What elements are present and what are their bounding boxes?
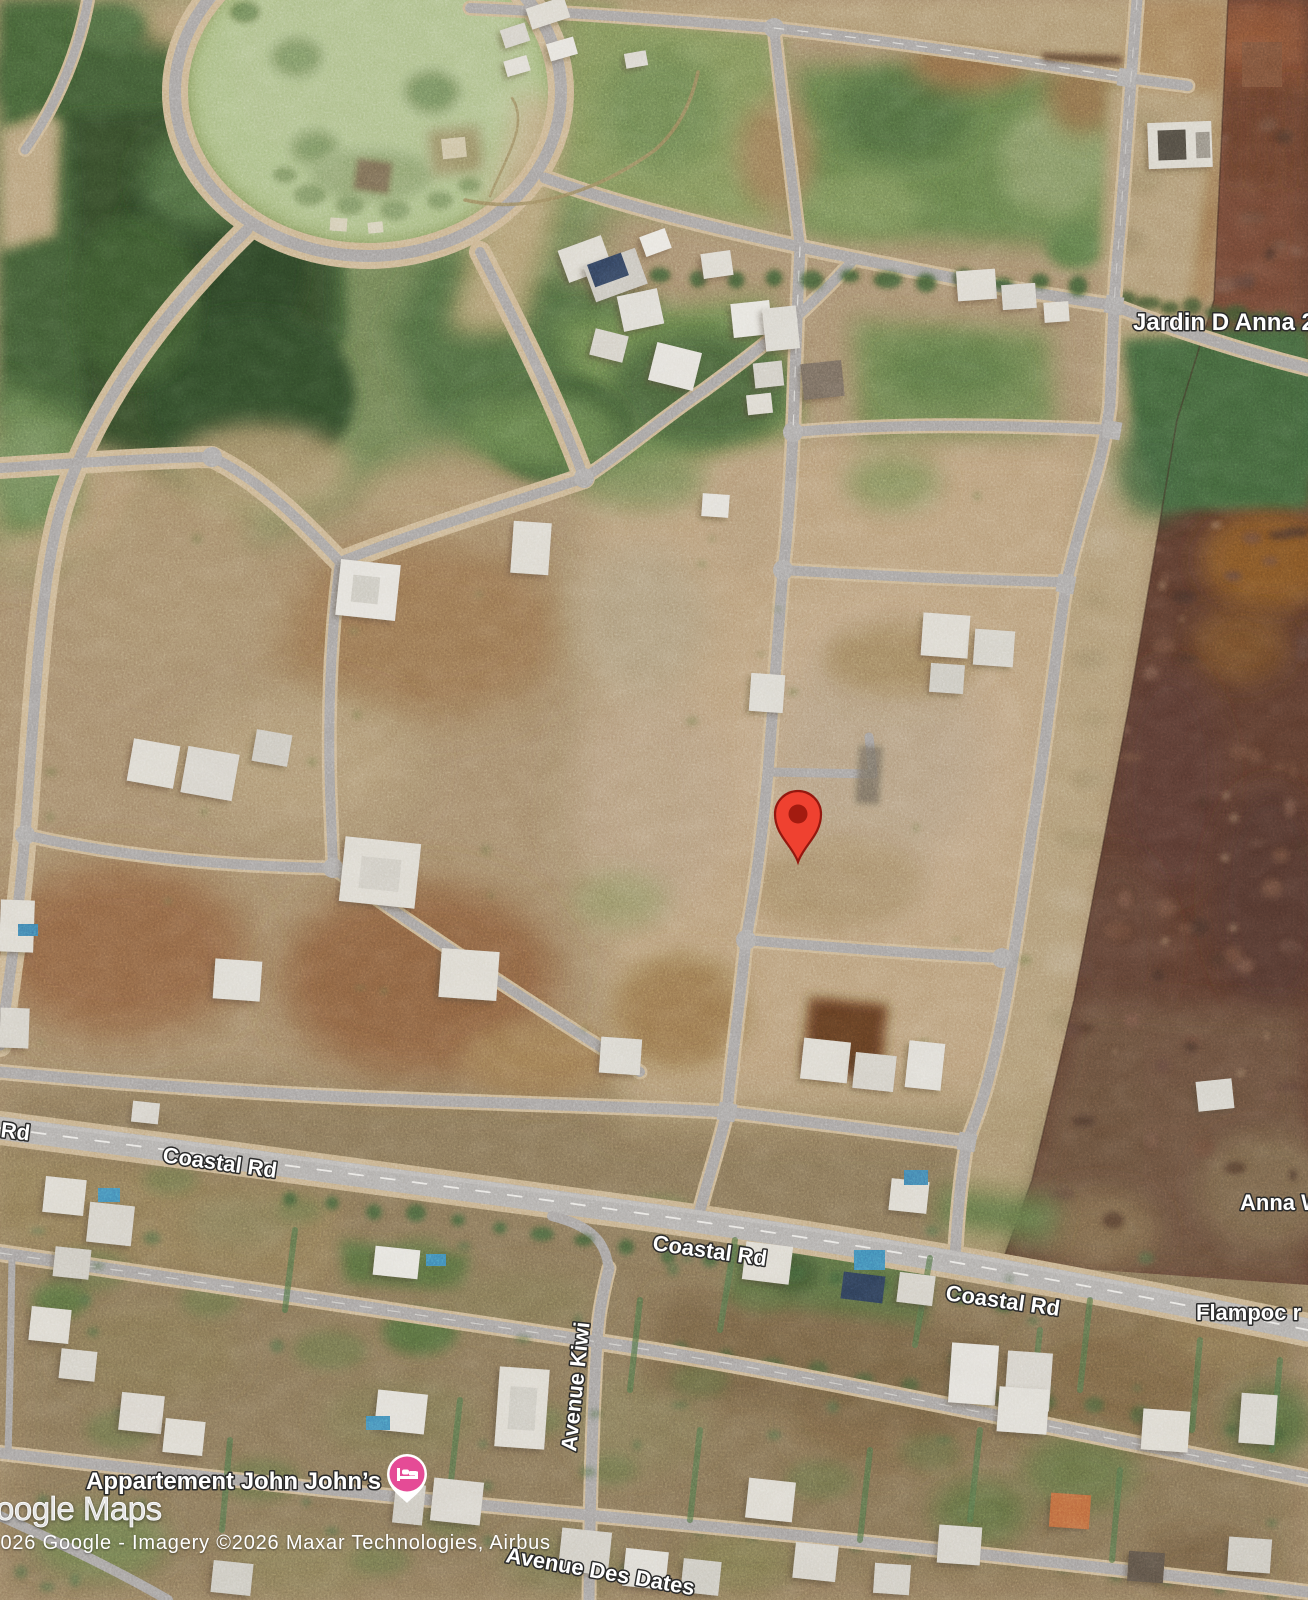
svg-text:Jardin D Anna 2: Jardin D Anna 2 bbox=[1133, 309, 1308, 336]
svg-text:Flampoc r: Flampoc r bbox=[1196, 1300, 1302, 1325]
svg-text:Rd: Rd bbox=[0, 1117, 32, 1145]
svg-text:Anna W: Anna W bbox=[1240, 1190, 1308, 1215]
svg-text:oogle Maps: oogle Maps bbox=[0, 1490, 162, 1527]
svg-text:©2026 Google - Imagery ©2026 M: ©2026 Google - Imagery ©2026 Maxar Techn… bbox=[0, 1532, 551, 1554]
